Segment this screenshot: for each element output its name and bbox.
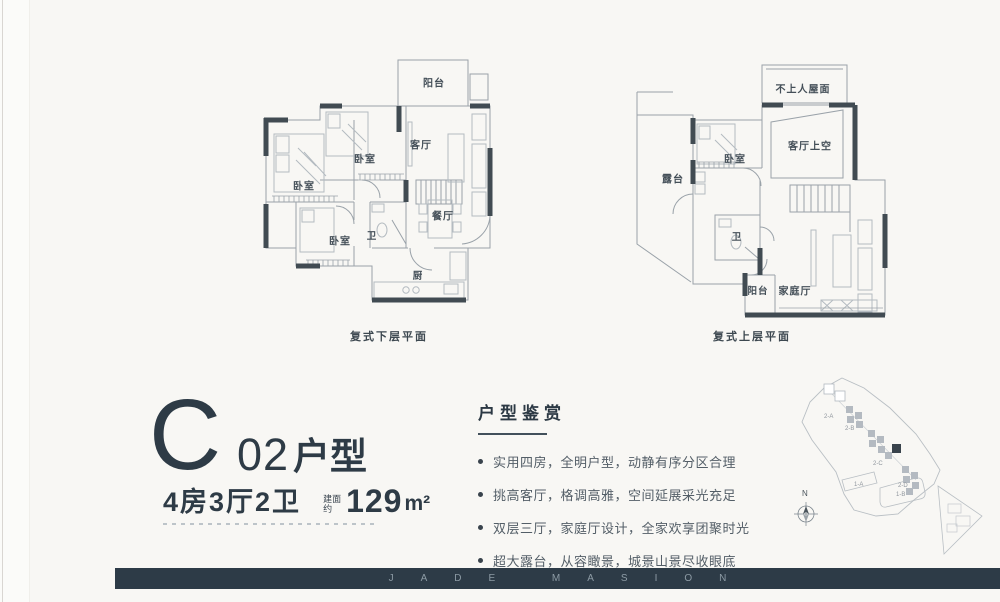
appreciation-section: 户型鉴赏 实用四房，全明户型，动静有序分区合理 挑高客厅，格调高雅，空间延展采光…: [478, 399, 788, 584]
room-label-void: 客厅上空: [788, 138, 832, 153]
feature-bullet: 挑高客厅，格调高雅，空间延展采光充足: [478, 485, 788, 504]
footer-brand-bar: JADE MASION: [115, 568, 1000, 589]
caption-lower-plan: 复式下层平面: [350, 328, 428, 344]
appreciation-title: 户型鉴赏: [478, 399, 788, 424]
floor-plan-lower: 阳台 客厅 卧室 卧室 卧室 卫 餐厅 厨: [258, 52, 500, 320]
page-edge-line: [2, 0, 3, 602]
caption-upper-plan: 复式上层平面: [713, 328, 791, 344]
floor-plan-upper: 不上人屋面 客厅上空 卧室 露台 卫 阳台 家庭厅: [633, 52, 889, 324]
feature-list: 实用四房，全明户型，动静有序分区合理 挑高客厅，格调高雅，空间延展采光充足 双层…: [478, 452, 788, 570]
site-label-2b: 2-B: [845, 426, 854, 432]
room-label-dining: 餐厅: [432, 208, 454, 223]
area-prefix: 建面约: [323, 494, 344, 514]
room-label-bath-upper: 卫: [732, 229, 743, 243]
unit-subtitle: 4房3厅2卫 建面约 129 m²: [163, 487, 430, 516]
unit-code: 02: [237, 434, 289, 475]
feature-text: 挑高客厅，格调高雅，空间延展采光充足: [493, 485, 736, 504]
page-edge-line-inner: [29, 0, 30, 602]
feature-text: 实用四房，全明户型，动静有序分区合理: [493, 452, 736, 471]
title-underline: [478, 433, 547, 435]
area-unit: m²: [404, 492, 430, 516]
rooms-summary: 4房3厅2卫: [163, 488, 301, 516]
room-label-bedroom-bottom: 卧室: [329, 233, 351, 248]
site-map-drawing: 2-A 2-B 2-C 2-D 1-A 1-B N: [790, 366, 998, 580]
site-label-1b: 1-B: [896, 492, 905, 498]
room-label-bedroom-mid: 卧室: [354, 151, 376, 166]
room-label-kitchen: 厨: [413, 268, 424, 282]
north-label: N: [802, 489, 808, 498]
feature-bullet: 实用四房，全明户型，动静有序分区合理: [478, 452, 788, 471]
room-label-bath-lower: 卫: [367, 228, 378, 242]
bullet-dot-icon: [478, 492, 483, 497]
page-edge-strip: [0, 0, 29, 602]
room-label-roof: 不上人屋面: [776, 81, 831, 96]
site-location-map: 2-A 2-B 2-C 2-D 1-A 1-B N: [790, 366, 998, 580]
unit-type-label: 户型: [293, 437, 367, 476]
compass-icon: N: [794, 489, 818, 526]
site-label-2a: 2-A: [824, 414, 833, 420]
room-label-bedroom-upper: 卧室: [724, 151, 746, 166]
area-value: 129: [346, 487, 402, 516]
room-label-terrace: 露台: [662, 171, 684, 186]
bullet-dot-icon: [478, 525, 483, 530]
brand-text: JADE MASION: [362, 573, 754, 584]
feature-text: 双层三厅，家庭厅设计，全家欢享团聚时光: [493, 518, 750, 537]
bullet-dot-icon: [478, 459, 483, 464]
site-label-2d: 2-D: [898, 483, 908, 489]
site-label-1a: 1-A: [854, 482, 863, 488]
room-label-living: 客厅: [410, 137, 432, 152]
bullet-dot-icon: [478, 558, 483, 563]
site-label-2c: 2-C: [873, 461, 883, 467]
room-label-family: 家庭厅: [779, 283, 812, 298]
room-label-balcony-lower: 阳台: [423, 75, 445, 90]
highlighted-building: [892, 444, 901, 453]
dashed-divider: [163, 523, 379, 525]
feature-bullet: 双层三厅，家庭厅设计，全家欢享团聚时光: [478, 518, 788, 537]
unit-letter: C: [149, 394, 221, 476]
room-label-balcony-upper: 阳台: [747, 283, 768, 297]
brochure-page: 阳台 客厅 卧室 卧室 卧室 卫 餐厅 厨 复式下层平面: [0, 0, 1000, 602]
room-label-bedroom-left: 卧室: [293, 178, 315, 193]
